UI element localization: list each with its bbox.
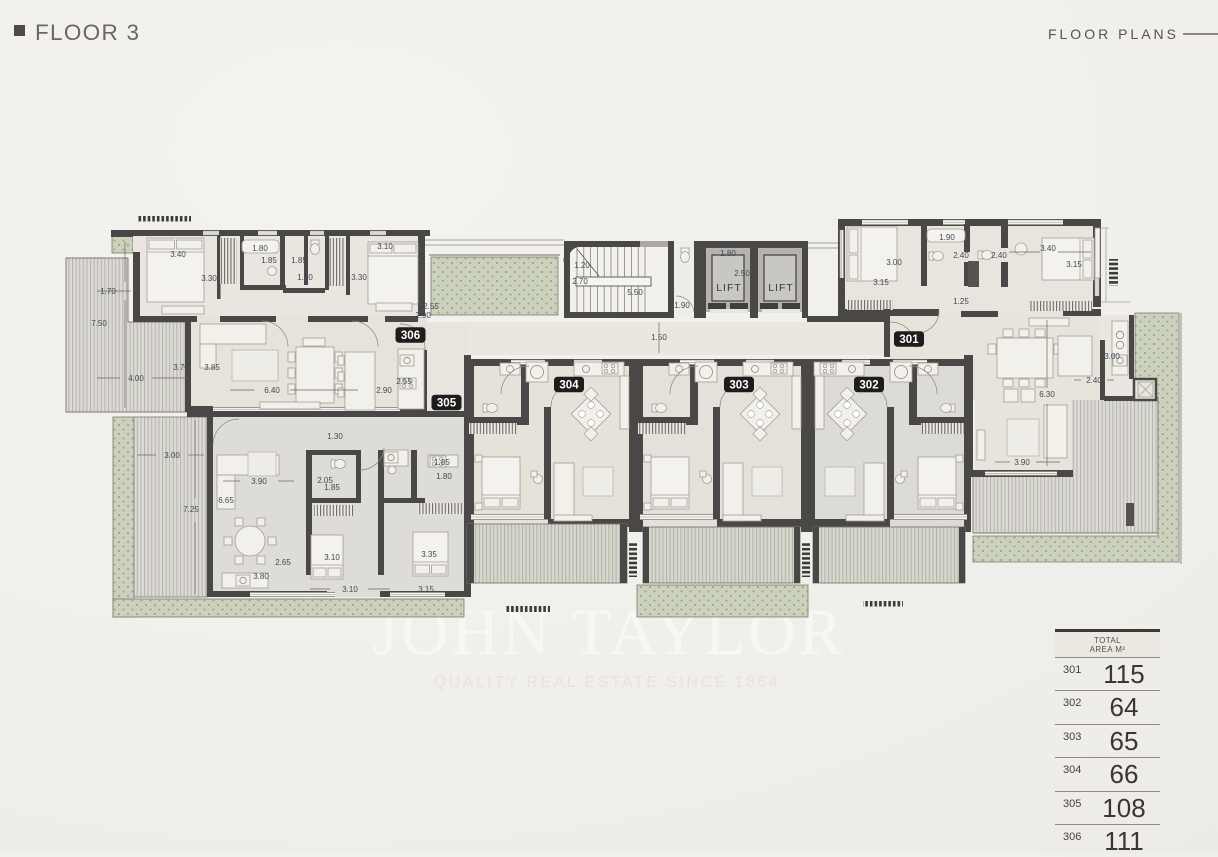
svg-text:3.00: 3.00 xyxy=(1104,352,1120,361)
svg-text:306: 306 xyxy=(401,330,420,342)
svg-text:4.00: 4.00 xyxy=(128,374,144,383)
svg-text:3.85: 3.85 xyxy=(204,363,220,372)
svg-text:304: 304 xyxy=(559,380,579,392)
svg-text:3.35: 3.35 xyxy=(421,550,437,559)
svg-text:1.90: 1.90 xyxy=(674,301,690,310)
svg-text:2.50: 2.50 xyxy=(734,269,750,278)
svg-text:2.40: 2.40 xyxy=(953,251,969,260)
svg-text:1.80: 1.80 xyxy=(297,273,313,282)
svg-text:1.85: 1.85 xyxy=(324,483,340,492)
svg-text:3.10: 3.10 xyxy=(324,553,340,562)
svg-text:1.70: 1.70 xyxy=(100,287,116,296)
svg-text:3.90: 3.90 xyxy=(251,477,267,486)
svg-text:7.50: 7.50 xyxy=(91,319,107,328)
svg-text:3.40: 3.40 xyxy=(1040,244,1056,253)
svg-text:6.65: 6.65 xyxy=(218,496,234,505)
svg-text:LIFT: LIFT xyxy=(716,282,742,294)
svg-text:2.40: 2.40 xyxy=(1086,376,1102,385)
svg-text:3.15: 3.15 xyxy=(1066,260,1082,269)
svg-text:305: 305 xyxy=(437,398,457,410)
svg-text:2.55: 2.55 xyxy=(423,302,439,311)
svg-text:1.80: 1.80 xyxy=(252,244,268,253)
svg-text:3.15: 3.15 xyxy=(873,278,889,287)
svg-text:1.25: 1.25 xyxy=(953,297,969,306)
svg-text:3.40: 3.40 xyxy=(170,250,186,259)
svg-text:1.30: 1.30 xyxy=(327,432,343,441)
svg-text:2.70: 2.70 xyxy=(572,277,588,286)
svg-text:3.30: 3.30 xyxy=(201,274,217,283)
svg-text:6.30: 6.30 xyxy=(1039,390,1055,399)
svg-text:3.90: 3.90 xyxy=(1014,458,1030,467)
svg-text:302: 302 xyxy=(859,380,878,392)
svg-text:3.00: 3.00 xyxy=(886,258,902,267)
svg-text:7.25: 7.25 xyxy=(183,505,199,514)
svg-text:303: 303 xyxy=(729,380,748,392)
svg-text:3.10: 3.10 xyxy=(377,242,393,251)
svg-text:3.00: 3.00 xyxy=(164,451,180,460)
svg-text:2.65: 2.65 xyxy=(275,558,291,567)
svg-text:2.55: 2.55 xyxy=(396,377,412,386)
svg-text:1.80: 1.80 xyxy=(436,472,452,481)
svg-text:1.80: 1.80 xyxy=(720,249,736,258)
svg-text:2.90: 2.90 xyxy=(415,311,431,320)
svg-text:1.85: 1.85 xyxy=(291,256,307,265)
svg-text:2.40: 2.40 xyxy=(991,251,1007,260)
svg-text:1.85: 1.85 xyxy=(261,256,277,265)
svg-text:LIFT: LIFT xyxy=(768,282,794,294)
svg-text:5.50: 5.50 xyxy=(627,288,643,297)
svg-text:2.90: 2.90 xyxy=(376,386,392,395)
svg-text:3.30: 3.30 xyxy=(351,273,367,282)
svg-text:301: 301 xyxy=(899,334,919,346)
svg-text:3.70: 3.70 xyxy=(173,363,189,372)
svg-text:6.40: 6.40 xyxy=(264,386,280,395)
svg-text:3.80: 3.80 xyxy=(253,572,269,581)
svg-text:1.20: 1.20 xyxy=(574,261,590,270)
svg-text:1.90: 1.90 xyxy=(939,233,955,242)
svg-text:1.85: 1.85 xyxy=(434,458,450,467)
svg-text:3.10: 3.10 xyxy=(342,585,358,594)
svg-text:3.15: 3.15 xyxy=(418,585,434,594)
